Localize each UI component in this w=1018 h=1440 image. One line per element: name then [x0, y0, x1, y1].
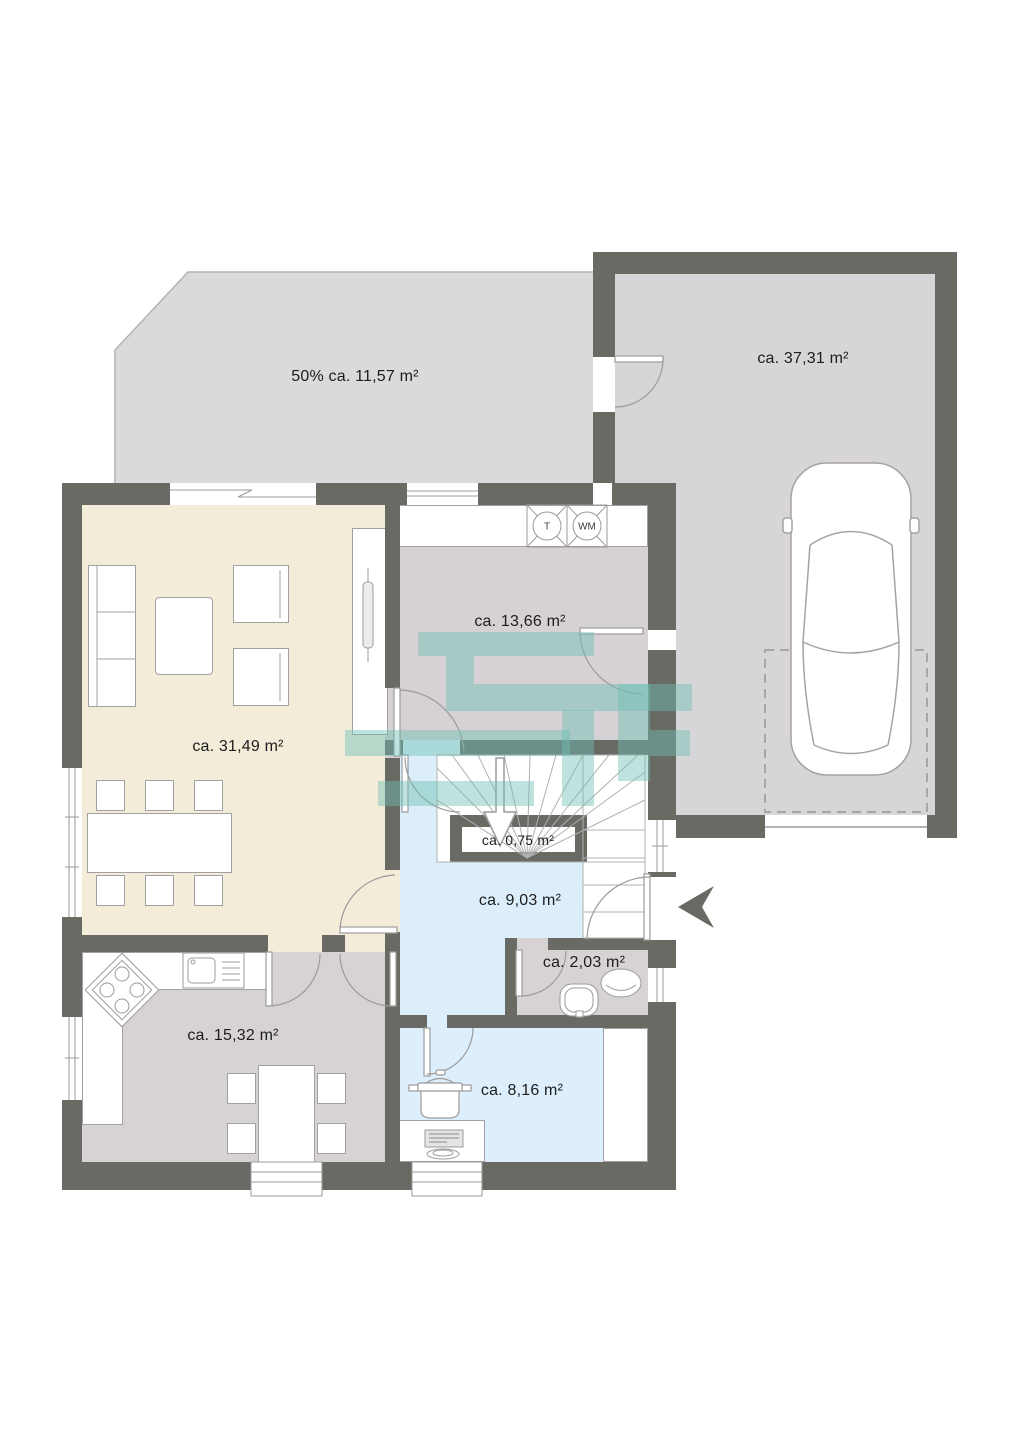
- dining-chair-2: [145, 780, 174, 811]
- doorgap-living-hall: [385, 870, 400, 932]
- dryer-label: T: [544, 522, 550, 533]
- living-label: ca. 31,49 m²: [192, 738, 283, 756]
- wall-workroom-north-1: [400, 1015, 427, 1028]
- dining-table: [87, 813, 232, 873]
- wall-workroom-north-2: [447, 1015, 648, 1028]
- wall-living-utility-2: [385, 758, 400, 870]
- hallway-label: ca. 9,03 m²: [479, 892, 561, 910]
- kitchen-label: ca. 15,32 m²: [187, 1027, 278, 1045]
- wall-wc-west: [505, 938, 517, 1028]
- wall-left-2: [62, 917, 82, 1017]
- kitchen-counter-left: [82, 952, 123, 1125]
- dining-chair-6: [194, 875, 223, 906]
- utility-garage-door-opening: [648, 630, 676, 650]
- garage-floor: [676, 505, 935, 815]
- doorgap-workroom: [427, 1015, 447, 1028]
- kitchen-chair-3: [317, 1073, 346, 1104]
- wall-left-1: [62, 483, 82, 768]
- workroom-closet: [603, 1028, 648, 1162]
- wall-bottom-2: [322, 1162, 412, 1190]
- entrance-arrow-icon: [678, 886, 714, 928]
- wall-living-kitchen-1: [62, 935, 268, 952]
- window-kitchen-bottom: [251, 1162, 322, 1196]
- wc-label: ca. 2,03 m²: [543, 954, 625, 972]
- wall-top-3: [478, 483, 593, 505]
- doorgap-kitchen-1: [268, 935, 322, 952]
- armchair-2: [233, 648, 289, 706]
- garage-wall-left-lower: [593, 412, 615, 483]
- garage-wall-bottom-east: [927, 815, 957, 838]
- garage-wall-left-upper: [593, 252, 615, 357]
- terrace-label: 50% ca. 11,57 m²: [291, 368, 418, 386]
- doorgap-wc: [517, 938, 548, 950]
- dining-chair-4: [96, 875, 125, 906]
- storage-label: ca. 0,75 m²: [482, 832, 554, 848]
- wall-right-5: [648, 1002, 676, 1162]
- watermark-bar: [345, 730, 570, 756]
- wall-bottom-1: [62, 1162, 251, 1190]
- floor-plan: 50% ca. 11,57 m² ca. 37,31 m² ca. 13,66 …: [0, 0, 1018, 1440]
- wall-kitchen-east: [385, 952, 400, 1162]
- wall-living-utility-1: [385, 505, 400, 688]
- garage-wall-right: [935, 252, 957, 838]
- terrace-passage-floor: [615, 274, 935, 505]
- kitchen-chair-4: [317, 1123, 346, 1154]
- garage-door-opening: [765, 815, 927, 838]
- garage-label: ca. 37,31 m²: [757, 350, 848, 368]
- wall-top-2: [316, 483, 407, 505]
- watermark-bar: [618, 684, 650, 781]
- sideboard: [352, 528, 388, 735]
- watermark-bar: [562, 710, 594, 806]
- washer-label: WM: [578, 522, 596, 533]
- dining-chair-1: [96, 780, 125, 811]
- watermark-bar: [378, 781, 534, 806]
- watermark-bar: [446, 684, 692, 711]
- watermark-bar: [650, 730, 690, 756]
- watermark-bar: [446, 656, 474, 684]
- dining-chair-3: [194, 780, 223, 811]
- window-workroom-bottom: [412, 1162, 482, 1196]
- kitchen-chair-1: [227, 1073, 256, 1104]
- window-living-top: [170, 483, 316, 505]
- dining-chair-5: [145, 875, 174, 906]
- hall-floor-west: [400, 755, 437, 862]
- utility-counter: [398, 505, 648, 547]
- wall-wc-top-2: [548, 938, 648, 950]
- window-utility-top: [407, 483, 478, 505]
- garage-wall-top: [593, 252, 957, 274]
- window-dining-left: [62, 768, 82, 917]
- wall-right-1: [648, 483, 676, 630]
- watermark-bar: [418, 632, 594, 656]
- kitchen-chair-2: [227, 1123, 256, 1154]
- coffee-table: [155, 597, 213, 675]
- utility-label: ca. 13,66 m²: [474, 613, 565, 631]
- entrance-door-opening: [648, 877, 676, 940]
- window-wc-right: [648, 968, 676, 1002]
- kitchen-table: [258, 1065, 315, 1165]
- wall-right-4: [648, 940, 676, 968]
- entrance-sidelight: [648, 820, 676, 872]
- wall-living-kitchen-2: [322, 935, 345, 952]
- wall-bottom-3: [482, 1162, 676, 1190]
- wall-left-3: [62, 1100, 82, 1162]
- workroom-label: ca. 8,16 m²: [481, 1082, 563, 1100]
- armchair-1: [233, 565, 289, 623]
- sofa: [88, 565, 136, 707]
- garage-side-door-opening: [593, 357, 615, 412]
- window-kitchen-left: [62, 1017, 82, 1100]
- workroom-desk: [398, 1120, 485, 1162]
- hall-floor-south: [400, 938, 505, 1015]
- wall-living-utility-3: [385, 932, 400, 952]
- opening-utility-terrace: [593, 483, 612, 505]
